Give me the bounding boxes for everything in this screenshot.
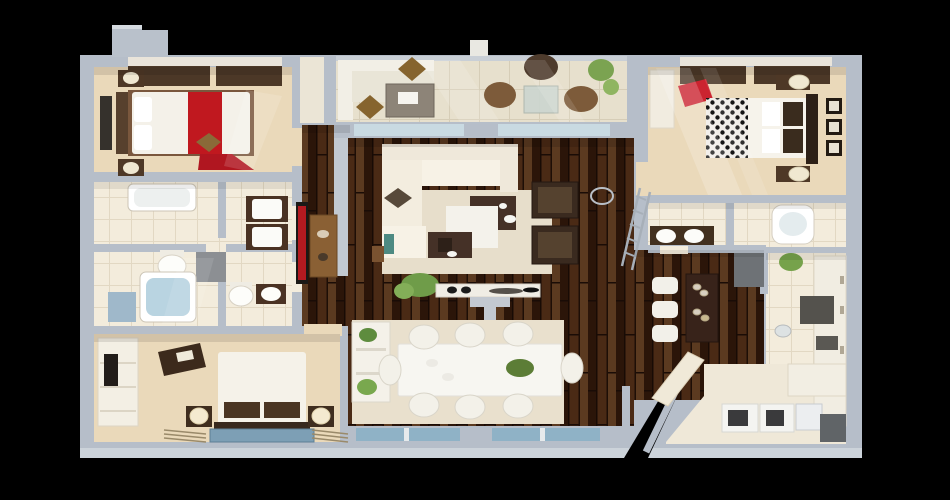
dining-chair <box>455 395 485 419</box>
magazine <box>398 92 418 104</box>
sofa-arm <box>500 144 518 192</box>
bar-stool <box>652 301 678 318</box>
bed-pillow <box>762 129 780 153</box>
table-lamp <box>123 162 139 174</box>
table-lamp <box>789 75 809 89</box>
table-decor <box>499 203 507 209</box>
console-decor <box>317 230 329 238</box>
bathtr-divider <box>726 203 734 253</box>
room-shade <box>766 253 846 260</box>
chimney-top-edge <box>112 25 142 29</box>
cabinet-handle <box>840 306 844 314</box>
dining-chair <box>503 322 533 346</box>
oven-appliance <box>800 296 834 324</box>
balcony-plant <box>588 59 614 81</box>
wicker-chair <box>484 82 516 108</box>
bottom-wall-highlight <box>80 448 862 458</box>
console-table <box>310 215 337 277</box>
bar-stool <box>652 277 678 294</box>
wood-side-table <box>372 246 384 262</box>
laundry-sink <box>796 404 822 430</box>
picture-inner <box>829 143 839 153</box>
tv-panel <box>104 354 118 386</box>
room-shade <box>302 125 350 133</box>
bed-pillow <box>134 97 152 122</box>
door-bedroom-tl <box>292 128 302 166</box>
accent-pillow <box>783 102 803 126</box>
dresser-line <box>100 386 136 388</box>
console-decor <box>318 253 328 261</box>
shelf-plant <box>359 328 377 342</box>
breakfast-bar <box>686 274 718 342</box>
bed-pillow <box>134 125 152 150</box>
kitchen-sink <box>775 325 791 337</box>
bed-pillow <box>762 102 780 126</box>
room-shade <box>648 203 846 209</box>
blue-rug <box>210 429 314 442</box>
picture-inner <box>829 101 839 111</box>
table-decor <box>504 215 516 223</box>
centerpiece <box>506 359 534 377</box>
window-sill-tl <box>128 57 282 66</box>
dining-chair <box>409 393 439 417</box>
table-lamp <box>789 167 809 181</box>
picture-inner <box>829 122 839 132</box>
balcony-plant <box>603 79 619 95</box>
patio-sofa-arm <box>338 60 353 120</box>
bed-pillow-brown <box>264 402 300 418</box>
wall-art <box>100 96 112 150</box>
window-light-patch <box>108 292 136 322</box>
speaker <box>447 287 457 294</box>
room-shade <box>94 182 292 189</box>
vanity-basin <box>656 229 676 243</box>
glow-lamp <box>190 408 208 424</box>
accent-pillow <box>783 129 803 153</box>
glass-door-panel <box>354 124 464 136</box>
room-shade <box>94 334 340 342</box>
cabinet-handle <box>840 276 844 284</box>
window-mullion <box>540 428 545 441</box>
room-shade <box>648 67 846 75</box>
bathtub-tr-water <box>779 212 807 236</box>
place-setting <box>442 373 454 381</box>
laundry-mat <box>820 414 846 442</box>
room-shade <box>348 138 634 147</box>
cabinet-handle <box>840 346 844 354</box>
bed-pillow-brown <box>224 402 260 418</box>
glass-door-panel <box>498 124 610 136</box>
bookshelf-line <box>356 348 386 351</box>
dresser-line <box>100 410 136 412</box>
dining-furniture <box>352 320 583 424</box>
armchair-cushion <box>538 232 572 258</box>
microwave-appliance <box>816 336 838 350</box>
floor-plan-image <box>0 0 950 500</box>
leaning-art-red <box>298 206 306 280</box>
speaker <box>461 287 471 294</box>
balcony-left-wall <box>324 55 336 125</box>
vanity-sink <box>252 227 282 247</box>
vanity-sink <box>252 199 282 219</box>
bed-headboard-tr <box>806 94 818 164</box>
shelf-plant <box>357 379 377 395</box>
dining-chair <box>455 323 485 347</box>
window-mullion <box>404 428 409 441</box>
window-sill-tr <box>680 57 832 66</box>
place-setting <box>426 359 438 367</box>
washer-door <box>728 410 748 426</box>
dining-table <box>398 344 562 396</box>
bath-divider-h1 <box>94 244 206 252</box>
room-shade <box>94 67 292 75</box>
wine-glass <box>693 309 701 315</box>
media-tray <box>489 288 523 294</box>
media-disc <box>523 288 539 293</box>
wine-glass <box>693 284 701 290</box>
table-decor <box>447 251 457 257</box>
entry-door-mat <box>734 253 764 287</box>
dining-chair <box>561 353 583 383</box>
wine-glass <box>701 315 709 321</box>
chimney-block2 <box>126 30 168 57</box>
bar-stool <box>652 325 678 342</box>
dining-window <box>492 428 600 441</box>
dining-chair <box>409 325 439 349</box>
sink-basin <box>261 287 281 301</box>
door-bedroom-tr <box>636 162 648 196</box>
table-tray <box>438 238 452 252</box>
bed-headboard <box>116 92 130 154</box>
room-shade <box>634 250 764 257</box>
toilet <box>229 286 253 306</box>
laundry-cabinets <box>788 364 846 396</box>
floor-plant <box>394 283 414 299</box>
vanity-basin <box>684 229 704 243</box>
glow-lamp <box>312 408 330 424</box>
closet-floor-tl <box>300 57 326 123</box>
wine-glass <box>700 290 708 296</box>
dryer-door <box>766 410 784 426</box>
dining-entry-wall <box>622 386 630 440</box>
bath-divider-v1 <box>218 182 226 238</box>
dining-chair <box>503 394 533 418</box>
sofa-pillow-teal <box>384 234 394 254</box>
floor-plan-canvas <box>0 0 950 500</box>
bathtub-interior <box>134 188 190 207</box>
armchair-cushion <box>538 187 572 213</box>
dining-chair <box>379 355 401 385</box>
